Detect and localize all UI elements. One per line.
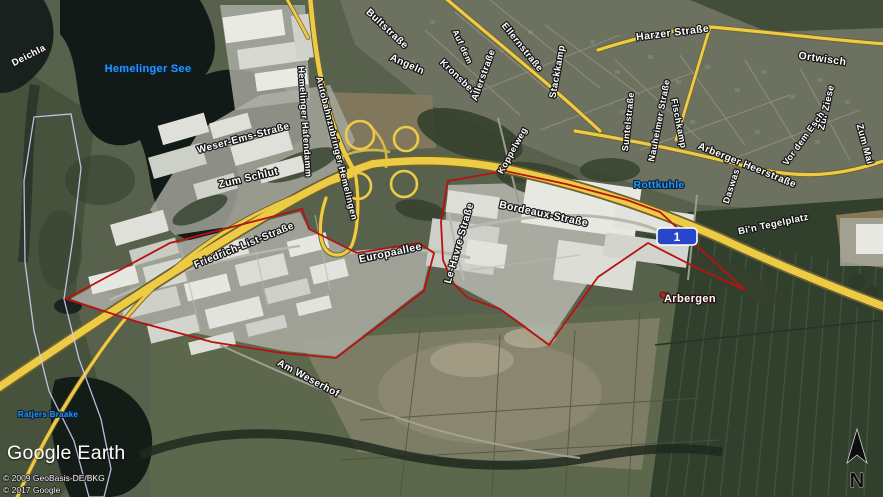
google-earth-map-canvas[interactable]: 1 Deichla Weser-Ems-Straße Zum Schlut He… (0, 0, 883, 497)
water-label-hemelinger-see: Hemelinger See (105, 63, 192, 75)
place-label-text: Arbergen (664, 293, 716, 305)
google-earth-logo: Google Earth (7, 442, 126, 464)
autobahn-shield-a1: 1 (657, 228, 697, 245)
shield-number: 1 (674, 230, 681, 244)
compass-north-label: N (850, 470, 864, 492)
copyright-line-1: © 2009 GeoBasis-DE/BKG (3, 473, 105, 483)
building-east-edge-factory (856, 224, 883, 254)
satellite-map[interactable]: 1 Deichla Weser-Ems-Straße Zum Schlut He… (0, 0, 883, 497)
water-label-ratjers-braake: Ratjers Braake (18, 410, 78, 419)
copyright-line-2: © 2017 Google (3, 485, 61, 495)
water-label-rottkuhle: Rottkuhle (633, 179, 684, 191)
place-label-arbergen: Arbergen (660, 292, 716, 305)
